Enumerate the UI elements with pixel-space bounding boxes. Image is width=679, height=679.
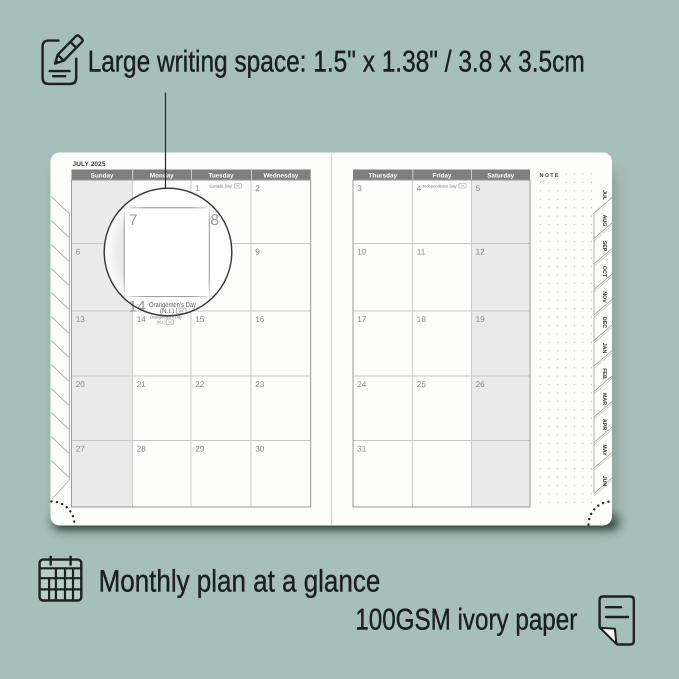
svg-text:Canada Day: Canada Day bbox=[210, 184, 232, 189]
svg-text:SEP: SEP bbox=[601, 241, 607, 252]
svg-text:Saturday: Saturday bbox=[487, 173, 514, 180]
svg-text:11: 11 bbox=[417, 248, 426, 257]
svg-text:20: 20 bbox=[76, 380, 86, 389]
svg-text:FEB: FEB bbox=[601, 368, 607, 379]
svg-text:24: 24 bbox=[357, 380, 367, 389]
svg-text:19: 19 bbox=[476, 315, 486, 324]
svg-text:1: 1 bbox=[195, 184, 200, 193]
svg-text:8: 8 bbox=[210, 212, 219, 229]
svg-text:Monday: Monday bbox=[150, 173, 174, 180]
svg-text:30: 30 bbox=[255, 445, 265, 454]
svg-text:14: 14 bbox=[129, 299, 147, 316]
svg-text:NOV: NOV bbox=[601, 291, 607, 303]
svg-text:JULY 2025: JULY 2025 bbox=[73, 161, 106, 168]
svg-text:(N.I.): (N.I.) bbox=[157, 320, 167, 325]
svg-text:26: 26 bbox=[476, 380, 486, 389]
svg-text:Large writing space: 1.5" x 1.: Large writing space: 1.5" x 1.38" / 3.8 … bbox=[88, 46, 585, 79]
svg-text:100GSM ivory paper: 100GSM ivory paper bbox=[355, 604, 577, 637]
svg-text:JUN: JUN bbox=[601, 476, 607, 487]
svg-text:APR: APR bbox=[601, 419, 607, 430]
svg-text:5: 5 bbox=[476, 184, 481, 193]
svg-text:7: 7 bbox=[129, 212, 138, 229]
svg-text:2: 2 bbox=[255, 184, 260, 193]
svg-text:16: 16 bbox=[255, 315, 265, 324]
svg-text:23: 23 bbox=[255, 380, 265, 389]
svg-text:OCT: OCT bbox=[601, 266, 607, 278]
svg-text:28: 28 bbox=[137, 445, 147, 454]
svg-text:10: 10 bbox=[357, 248, 367, 257]
svg-text:22: 22 bbox=[195, 380, 205, 389]
svg-text:Tuesday: Tuesday bbox=[208, 173, 234, 180]
svg-text:6: 6 bbox=[76, 248, 81, 257]
svg-text:27: 27 bbox=[76, 445, 86, 454]
svg-text:31: 31 bbox=[357, 445, 367, 454]
svg-text:MAY: MAY bbox=[601, 444, 607, 456]
svg-text:4: 4 bbox=[417, 184, 422, 193]
svg-text:Friday: Friday bbox=[433, 173, 452, 180]
svg-text:15: 15 bbox=[195, 315, 205, 324]
svg-text:JUL: JUL bbox=[601, 190, 607, 201]
svg-text:18: 18 bbox=[417, 315, 427, 324]
svg-text:(N.I.): (N.I.) bbox=[160, 308, 174, 315]
svg-text:29: 29 bbox=[195, 445, 205, 454]
svg-text:17: 17 bbox=[357, 315, 367, 324]
svg-text:25: 25 bbox=[417, 380, 427, 389]
svg-text:13: 13 bbox=[76, 315, 86, 324]
svg-text:Wednesday: Wednesday bbox=[263, 173, 298, 180]
svg-text:NOTE: NOTE bbox=[540, 173, 560, 179]
svg-text:MAR: MAR bbox=[601, 393, 607, 405]
svg-text:12: 12 bbox=[476, 248, 486, 257]
svg-text:3: 3 bbox=[357, 184, 362, 193]
svg-text:Sunday: Sunday bbox=[91, 173, 114, 180]
svg-text:Thursday: Thursday bbox=[369, 173, 398, 180]
svg-text:Independence Day: Independence Day bbox=[423, 184, 457, 189]
svg-text:AUG: AUG bbox=[601, 215, 607, 227]
svg-text:9: 9 bbox=[255, 248, 260, 257]
svg-text:JAN: JAN bbox=[601, 343, 607, 354]
svg-text:DEC: DEC bbox=[601, 317, 607, 328]
svg-text:14: 14 bbox=[137, 315, 147, 324]
svg-text:21: 21 bbox=[137, 380, 147, 389]
svg-text:Monthly plan at a glance: Monthly plan at a glance bbox=[99, 564, 381, 599]
